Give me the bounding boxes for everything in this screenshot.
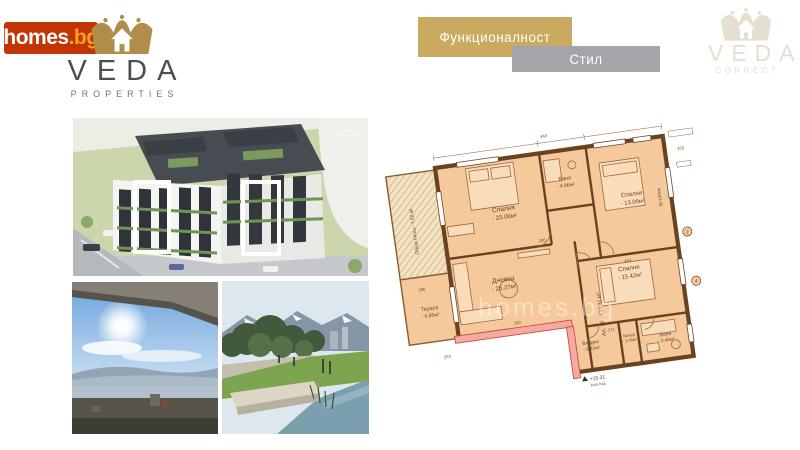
veda-properties-subtitle: PROPERTIES (56, 89, 188, 99)
veda-correct-name: VEDA (700, 42, 792, 65)
veda-properties-name: VEDA (56, 56, 188, 86)
veda-correct-logo: VEDA CORRECT (700, 8, 792, 75)
veda-correct-subtitle: CORRECT (700, 66, 792, 75)
plan-watermark: homes.bg (478, 292, 616, 322)
elevation-marker: +15.31 кота под (581, 373, 606, 388)
svg-text:кота под: кота под (590, 381, 606, 387)
crown-icon (89, 14, 155, 56)
floor-plan-image[interactable]: Спалня - 23.06м² Баня - 4.96м² Спалня - … (378, 116, 790, 438)
listing-page: { "header": { "homes_logo": { "main": "h… (0, 0, 800, 450)
render-watermark: VEDA (335, 129, 361, 138)
photo-balcony-view[interactable] (72, 282, 218, 434)
tab-style[interactable]: Стил (512, 46, 660, 72)
tab-functionality-label: Функционалност (440, 30, 551, 45)
photo-park-render[interactable] (222, 281, 369, 434)
svg-text:150: 150 (677, 145, 685, 151)
veda-properties-logo: VEDA PROPERTIES (56, 14, 188, 99)
svg-text:100: 100 (538, 237, 546, 243)
svg-text:286: 286 (418, 286, 426, 292)
svg-text:171: 171 (607, 326, 615, 332)
svg-text:253: 253 (444, 354, 452, 360)
svg-text:443: 443 (624, 258, 632, 264)
tab-style-label: Стил (569, 52, 602, 67)
crown-icon (718, 8, 774, 42)
building-render-image[interactable]: VEDA (73, 118, 368, 276)
svg-text:449: 449 (540, 133, 548, 139)
floor-plan-drawing: Спалня - 23.06м² Баня - 4.96м² Спалня - … (383, 116, 726, 412)
